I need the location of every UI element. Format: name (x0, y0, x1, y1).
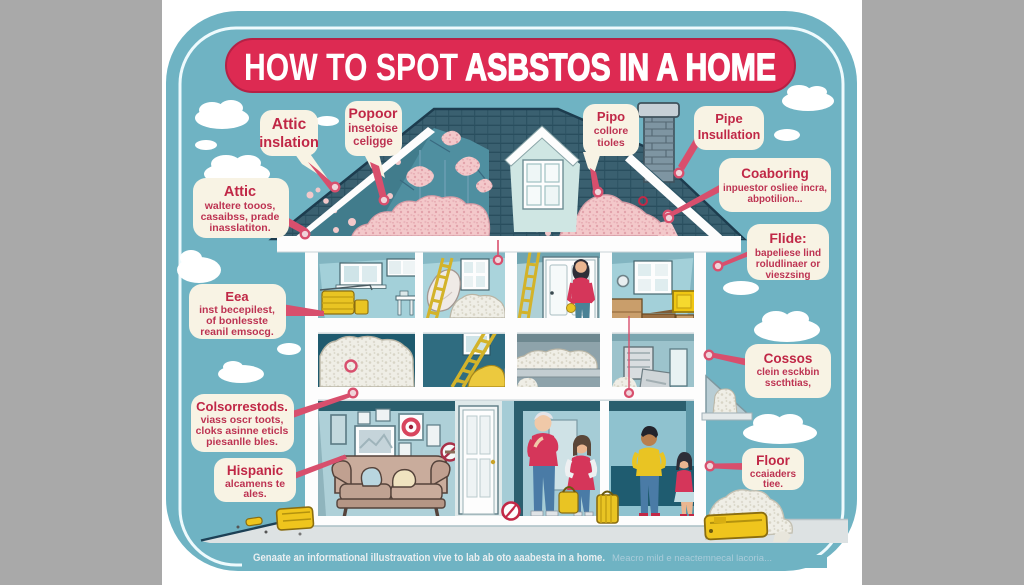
svg-text:HOW TO SPOT ASBSTOS IN A HOME: HOW TO SPOT ASBSTOS IN A HOME (244, 47, 776, 89)
svg-text:sscthtias,: sscthtias, (765, 378, 811, 389)
svg-text:inasslatiton.: inasslatiton. (209, 222, 270, 234)
svg-text:Insullation: Insullation (698, 128, 761, 142)
svg-text:Colsorrestods.: Colsorrestods. (196, 399, 288, 414)
svg-text:Floor: Floor (756, 453, 790, 468)
svg-text:inpuestor osliee incra,: inpuestor osliee incra, (723, 183, 827, 194)
svg-text:clein esckbin: clein esckbin (757, 367, 820, 378)
svg-text:Attic: Attic (224, 184, 256, 200)
svg-text:reanil emsocg.: reanil emsocg. (200, 326, 274, 338)
svg-text:insetoise: insetoise (348, 123, 398, 135)
svg-text:celigge: celigge (353, 136, 393, 148)
svg-text:Pipo: Pipo (597, 109, 625, 124)
svg-text:Popoor: Popoor (349, 105, 399, 121)
svg-text:Eea: Eea (225, 289, 249, 304)
svg-text:tiee.: tiee. (763, 479, 783, 490)
svg-text:Meacro mild e neactemnecal lac: Meacro mild e neactemnecal lacoria... (612, 553, 772, 563)
svg-text:ales.: ales. (243, 488, 266, 500)
svg-text:vieszsing: vieszsing (765, 270, 810, 281)
svg-text:abpotilion...: abpotilion... (748, 194, 803, 205)
svg-text:inslation: inslation (259, 135, 319, 151)
svg-text:Coaboring: Coaboring (741, 166, 809, 181)
svg-text:Attic: Attic (272, 116, 307, 133)
svg-text:Genaate an informational illus: Genaate an informational illustravation … (253, 552, 605, 564)
svg-text:tioles: tioles (597, 137, 625, 149)
svg-text:roludlinaer or: roludlinaer or (756, 259, 821, 270)
svg-text:Flide:: Flide: (769, 230, 806, 246)
svg-text:collore: collore (594, 125, 629, 137)
svg-text:Hispanic: Hispanic (227, 463, 284, 478)
svg-text:Cossos: Cossos (764, 351, 813, 366)
svg-text:bapeliese lind: bapeliese lind (755, 248, 821, 259)
svg-text:Pipe: Pipe (715, 111, 742, 126)
svg-text:piesanlle bles.: piesanlle bles. (206, 436, 278, 448)
